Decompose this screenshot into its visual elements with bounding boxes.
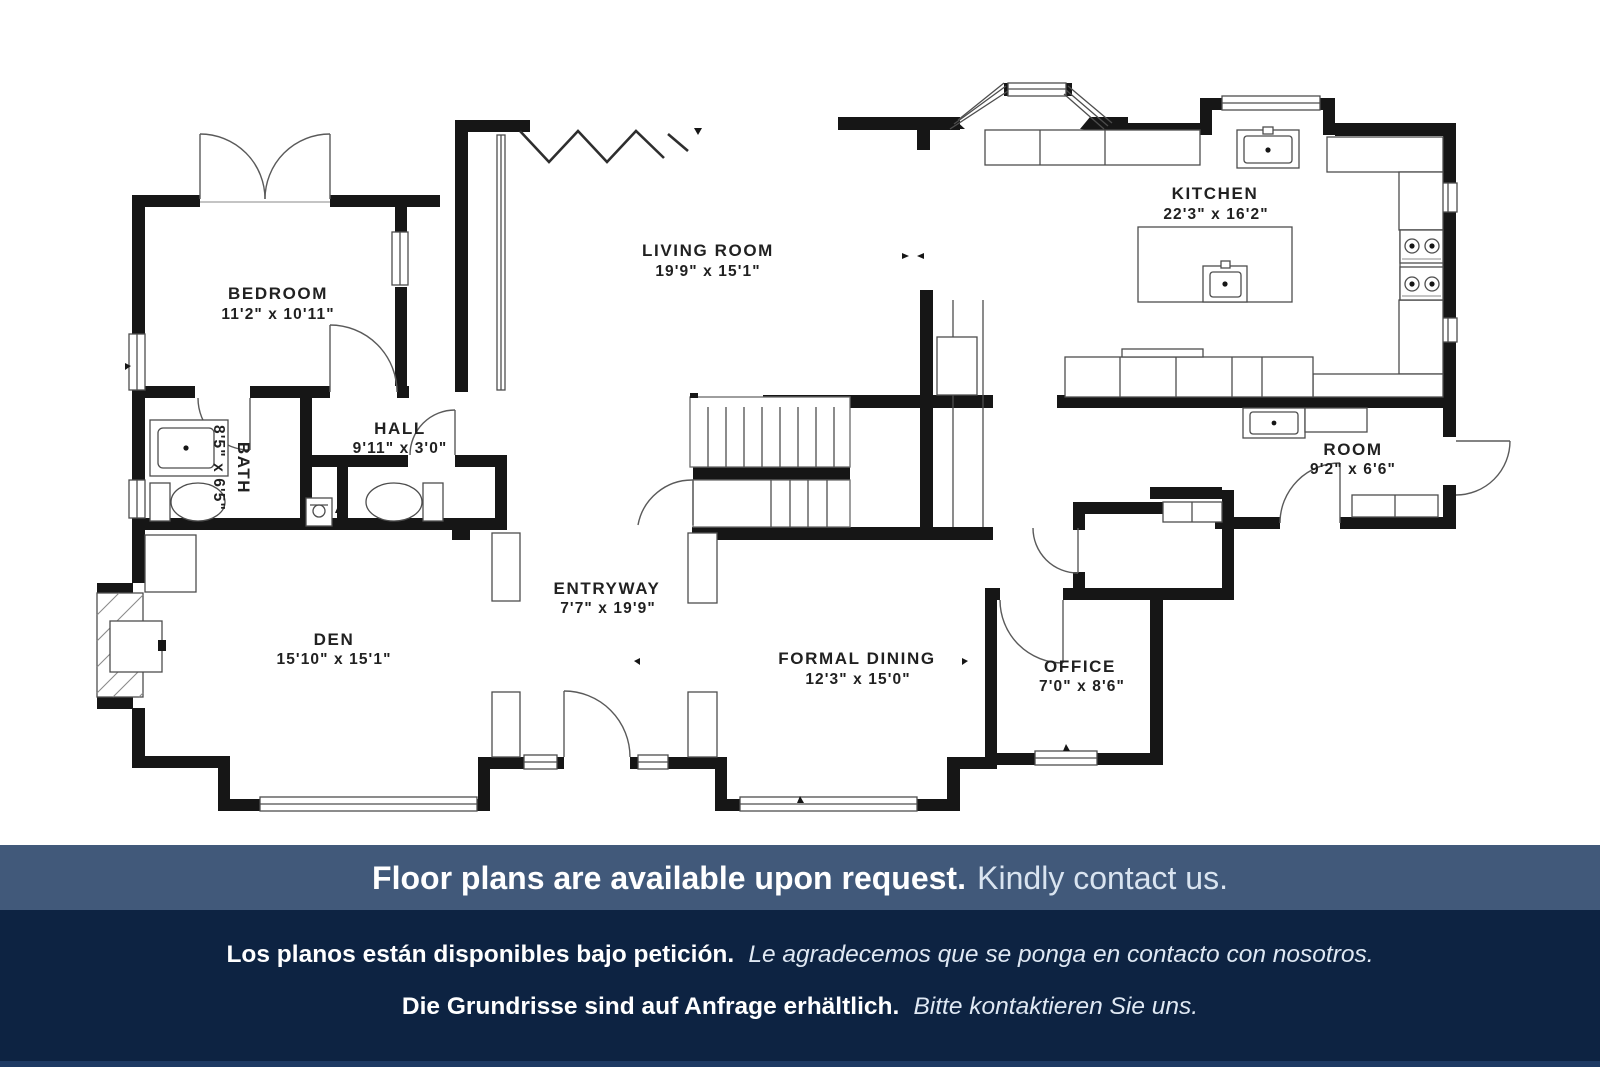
- svg-text:9'11" x 3'0": 9'11" x 3'0": [353, 440, 448, 457]
- svg-text:12'3" x 15'0": 12'3" x 15'0": [805, 671, 910, 688]
- footer-german-bold: Die Grundrisse sind auf Anfrage erhältli…: [402, 993, 899, 1020]
- pillars-and-closets: [145, 533, 717, 757]
- banner-headline-regular: Kindly contact us.: [977, 862, 1228, 894]
- staircase: [690, 300, 983, 527]
- footer-spanish-bold: Los planos están disponibles bajo petici…: [226, 941, 734, 968]
- room-label-formal-dining: FORMAL DINING 12'3" x 15'0": [778, 649, 935, 688]
- room-label-kitchen: KITCHEN 22'3" x 16'2": [1163, 184, 1268, 223]
- svg-text:ENTRYWAY: ENTRYWAY: [554, 579, 661, 598]
- svg-text:ROOM: ROOM: [1323, 440, 1382, 459]
- svg-text:OFFICE: OFFICE: [1044, 657, 1116, 676]
- svg-text:8'5" x 6'5": 8'5" x 6'5": [210, 425, 227, 511]
- toilet-icon: [366, 483, 443, 521]
- footer-line-german: Die Grundrisse sind auf Anfrage erhältli…: [402, 992, 1198, 1023]
- svg-text:BATH: BATH: [234, 442, 253, 494]
- room-label-bedroom: BEDROOM 11'2" x 10'11": [221, 284, 334, 323]
- svg-text:15'10" x 15'1": 15'10" x 15'1": [276, 651, 391, 668]
- svg-text:KITCHEN: KITCHEN: [1172, 184, 1259, 203]
- room-label-entryway: ENTRYWAY 7'7" x 19'9": [554, 579, 661, 617]
- svg-text:FORMAL DINING: FORMAL DINING: [778, 649, 935, 668]
- room-label-room: ROOM 9'2" x 6'6": [1310, 440, 1396, 478]
- room-label-hall: HALL 9'11" x 3'0": [353, 419, 448, 457]
- svg-text:9'2" x 6'6": 9'2" x 6'6": [1310, 461, 1396, 478]
- sink-icon: [1203, 261, 1247, 302]
- svg-text:7'7" x 19'9": 7'7" x 19'9": [560, 600, 656, 617]
- svg-text:11'2" x 10'11": 11'2" x 10'11": [221, 306, 334, 323]
- page: BEDROOM 11'2" x 10'11" HALL 9'11" x 3'0"…: [0, 0, 1600, 1067]
- room-label-office: OFFICE 7'0" x 8'6": [1039, 657, 1125, 695]
- stove-icon: [1400, 230, 1443, 300]
- room-label-living-room: LIVING ROOM 19'9" x 15'1": [642, 241, 774, 280]
- svg-text:7'0" x 8'6": 7'0" x 8'6": [1039, 678, 1125, 695]
- translations-footer: Los planos están disponibles bajo petici…: [0, 910, 1600, 1067]
- room-label-den: DEN 15'10" x 15'1": [276, 630, 391, 668]
- banner-headline-bold: Floor plans are available upon request.: [372, 862, 966, 894]
- svg-text:LIVING ROOM: LIVING ROOM: [642, 241, 774, 260]
- floor-plan-area: BEDROOM 11'2" x 10'11" HALL 9'11" x 3'0"…: [0, 0, 1600, 845]
- svg-text:19'9" x 15'1": 19'9" x 15'1": [655, 263, 760, 280]
- floor-plan-drawing: BEDROOM 11'2" x 10'11" HALL 9'11" x 3'0"…: [0, 0, 1600, 845]
- footer-line-spanish: Los planos están disponibles bajo petici…: [226, 940, 1373, 971]
- svg-text:BEDROOM: BEDROOM: [228, 284, 328, 303]
- svg-text:22'3" x 16'2": 22'3" x 16'2": [1163, 206, 1268, 223]
- fireplace-icon: [97, 593, 166, 697]
- footer-spanish-italic: Le agradecemos que se ponga en contacto …: [748, 941, 1373, 968]
- contact-banner: Floor plans are available upon request. …: [0, 845, 1600, 910]
- footer-german-italic: Bitte kontaktieren Sie uns.: [913, 993, 1198, 1020]
- room-label-bath: BATH 8'5" x 6'5": [210, 425, 253, 511]
- sink-icon: [1237, 127, 1299, 168]
- small-sink-icon: [306, 498, 332, 526]
- svg-text:HALL: HALL: [374, 419, 426, 438]
- svg-text:DEN: DEN: [314, 630, 355, 649]
